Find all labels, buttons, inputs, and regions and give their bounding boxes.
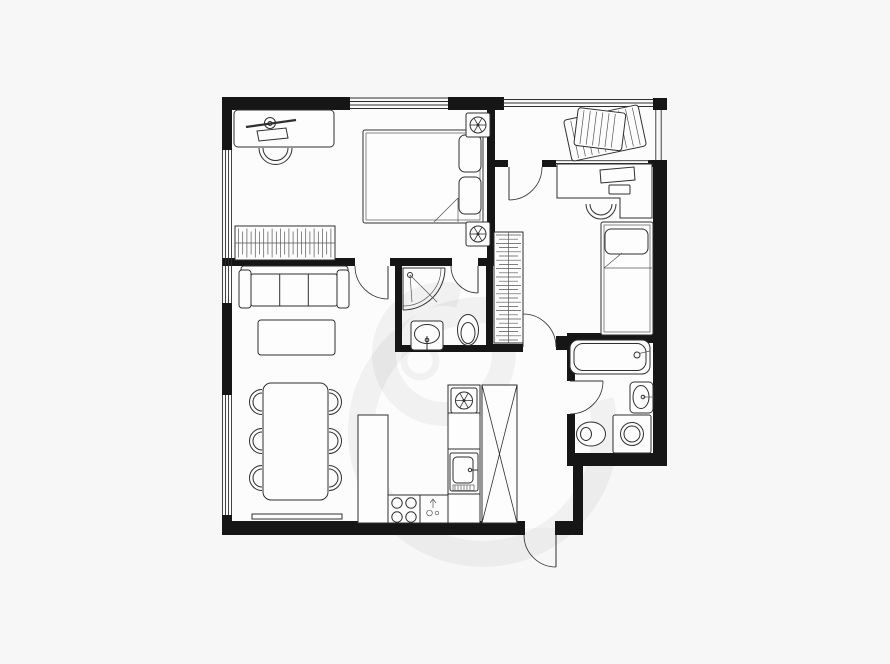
kitchen-counter-south (388, 495, 448, 523)
floor-plan-page (0, 0, 890, 664)
sofa-arm-left (239, 270, 251, 308)
bath1-toilet-bowl (458, 315, 479, 346)
bedroom1-pillow-1 (459, 135, 481, 172)
bedroom2-pillow (605, 229, 648, 254)
wall-top-left (222, 97, 350, 110)
fan-symbol-2 (466, 222, 490, 246)
fan-hub (463, 399, 466, 402)
wall-balcony-post (653, 98, 667, 110)
fan-hub (477, 233, 480, 236)
washing-machine (613, 415, 651, 453)
kitchen-counter-west (358, 415, 388, 523)
wall-bath1-south (395, 345, 493, 352)
floorplan-svg (0, 0, 890, 664)
wall-top-mid (448, 97, 504, 110)
bedroom2-monitor (600, 167, 635, 183)
wall-balcony-jamb-west (490, 160, 508, 167)
wall-bath2-south (567, 453, 667, 466)
bedroom1-pillow-2 (459, 177, 481, 214)
dining-table (263, 383, 328, 500)
wall-bath2-west-lower (567, 414, 575, 458)
coffee-table (258, 320, 335, 355)
tv-bench (252, 514, 342, 519)
wall-balcony-mid (542, 160, 556, 167)
wall-right (653, 160, 667, 466)
wall-hall-east (573, 460, 583, 535)
wall-left-mid (222, 303, 232, 395)
fan-symbol-1 (466, 113, 490, 137)
sofa-seat (251, 274, 337, 306)
wall-bath2-nw-stub (556, 336, 568, 350)
fan-hub (477, 124, 480, 127)
balcony-drying-rack-2 (574, 107, 626, 151)
sofa-arm-right (337, 270, 349, 308)
wall-bath1-west (395, 260, 402, 352)
wall-left-upper (222, 97, 232, 150)
fan-symbol-kitchen (451, 388, 477, 413)
wall-bed2-south (493, 344, 523, 352)
wall-bath1-east (486, 260, 493, 352)
bathtub-faucet (634, 352, 640, 358)
